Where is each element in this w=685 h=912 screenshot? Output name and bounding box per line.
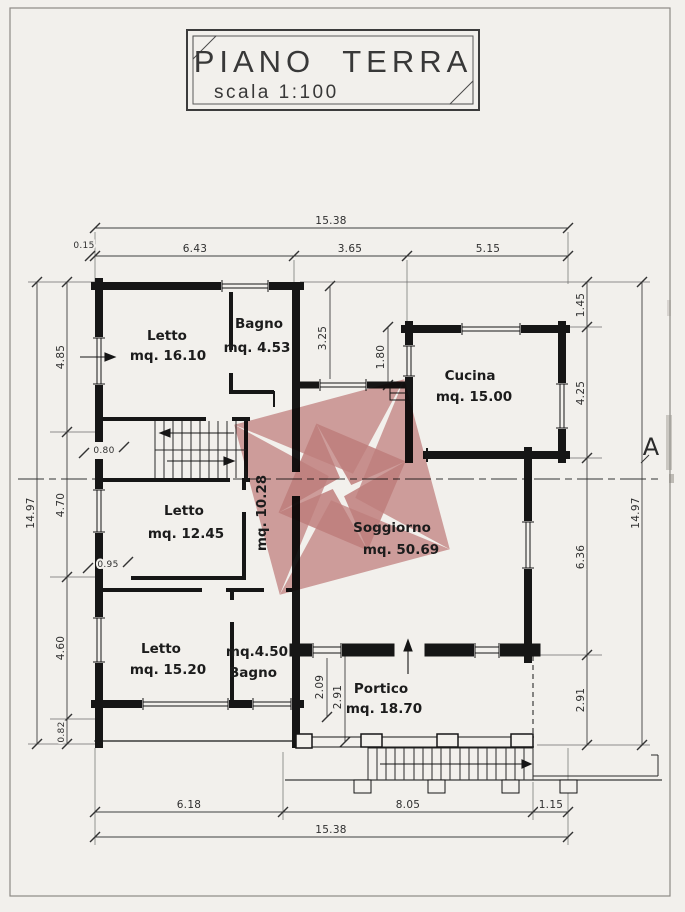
room-portico-area: mq. 18.70 [346, 701, 422, 717]
window [93, 617, 105, 663]
portico-pillars [296, 656, 577, 793]
window [522, 521, 534, 569]
dim-right-seg1: 1.45 [575, 293, 587, 318]
section-marker-label: A [643, 433, 660, 461]
dim-portico-depth1: 2.09 [314, 675, 326, 700]
dim-bottom-seg3: 1.15 [539, 799, 564, 811]
room-bagno2-area: mq.4.50 [226, 644, 288, 660]
room-letto2-name: Letto [164, 503, 204, 519]
room-letto3-name: Letto [141, 641, 181, 657]
dim-left-seg3: 4.60 [55, 636, 67, 661]
floorplan-drawing: PIANO TERRA scala 1:100 [0, 0, 685, 912]
room-soggiorno-area: mq. 50.69 [363, 542, 439, 558]
window [319, 379, 367, 391]
room-soggiorno-name: Soggiorno [353, 520, 431, 536]
plan-title: PIANO TERRA [194, 44, 473, 79]
room-letto3-area: mq. 15.20 [130, 662, 206, 678]
window [142, 698, 229, 710]
folded-corner-bottom-right [450, 81, 473, 104]
dim-door1: 0.80 [93, 446, 114, 456]
room-cucina-area: mq. 15.00 [436, 389, 512, 405]
room-portico-name: Portico [354, 681, 408, 697]
dim-bottom-seg2: 8.05 [396, 799, 421, 811]
window [252, 698, 292, 710]
plan-scale: scala 1:100 [214, 82, 339, 103]
window [556, 383, 568, 429]
dim-right-seg3: 6.36 [575, 545, 587, 570]
window [403, 345, 415, 377]
dim-left-overall: 14.97 [25, 497, 37, 529]
dim-right-overall: 14.97 [630, 497, 642, 529]
room-disimpegno-area: mq. 10.28 [254, 475, 270, 551]
window [93, 489, 105, 533]
dim-top-seg3: 5.15 [476, 243, 501, 255]
window [312, 643, 342, 658]
room-letto1-name: Letto [147, 328, 187, 344]
window [474, 643, 500, 658]
dim-portico-depth2: 2.91 [332, 685, 344, 710]
dim-left-seg4: 0.82 [57, 721, 67, 742]
dim-right-seg2: 4.25 [575, 381, 587, 406]
dim-top-seg1: 6.43 [183, 243, 208, 255]
dim-left-seg2: 4.70 [55, 493, 67, 518]
window [93, 337, 105, 385]
room-bagno1-name: Bagno [235, 316, 283, 332]
floorplan-document: PIANO TERRA scala 1:100 [0, 0, 685, 912]
dim-right-seg4: 2.91 [575, 688, 587, 713]
dim-top-overall: 15.38 [315, 215, 347, 227]
dim-court2: 1.80 [375, 345, 387, 370]
room-letto1-area: mq. 16.10 [130, 348, 206, 364]
title-block: PIANO TERRA scala 1:100 [187, 30, 479, 110]
window [461, 323, 521, 335]
dim-left-seg1: 4.85 [55, 345, 67, 370]
dim-bottom-seg1: 6.18 [177, 799, 202, 811]
dim-door2: 0.95 [97, 560, 118, 570]
dim-court1: 3.25 [317, 326, 329, 351]
room-bagno1-area: mq. 4.53 [224, 340, 291, 356]
dim-top-offset: 0.15 [73, 241, 94, 251]
room-cucina-name: Cucina [445, 368, 496, 384]
dim-bottom-overall: 15.38 [315, 824, 347, 836]
window [221, 280, 269, 292]
room-letto2-area: mq. 12.45 [148, 526, 224, 542]
room-bagno2-name: Bagno [229, 665, 277, 681]
dim-top-seg2: 3.65 [338, 243, 363, 255]
